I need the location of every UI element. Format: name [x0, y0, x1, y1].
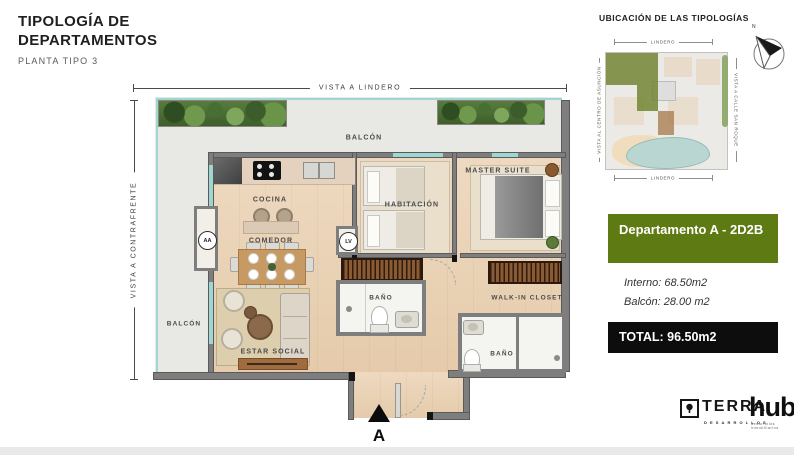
unit-total-box: TOTAL: 96.50m2	[608, 322, 778, 353]
armchair	[221, 328, 243, 350]
hub-wordmark: hub	[749, 392, 794, 422]
floor-plan-slide: TIPOLOGÍA DE DEPARTAMENTOS PLANTA TIPO 3…	[0, 0, 794, 455]
dimension-tick	[130, 379, 138, 380]
dining-table	[238, 249, 306, 285]
tree-icon	[680, 399, 699, 418]
tv-console	[238, 358, 308, 370]
wardrobe-bedroom	[341, 258, 423, 281]
sliding-door-glass	[209, 282, 213, 344]
plant-icon	[546, 236, 559, 249]
toilet-tank	[370, 324, 389, 333]
kitchen-label: COCINA	[253, 197, 287, 204]
page-header: TIPOLOGÍA DE DEPARTAMENTOS PLANTA TIPO 3	[18, 13, 157, 66]
unit-interior-area: Interno: 68.50m2	[624, 274, 710, 293]
walkin-label: WALK-IN CLOSET	[491, 295, 562, 302]
boundary-bottom-label: LINDERO	[647, 176, 679, 181]
window-glass	[393, 153, 443, 157]
boundary-top-label: LINDERO	[647, 40, 679, 45]
toilet-tank	[463, 364, 481, 372]
hub-logo: hub® desarrollos inmobiliarios	[749, 394, 794, 430]
wall-bedroom-master	[452, 152, 457, 262]
hedge-icon	[722, 55, 728, 127]
sliding-door-glass	[209, 165, 213, 207]
building-footprint	[605, 52, 728, 170]
dimension-tick	[566, 84, 567, 92]
door-jamb	[427, 412, 433, 420]
side-table	[244, 306, 257, 319]
location-title: UBICACIÓN DE LAS TIPOLOGÍAS	[599, 13, 749, 23]
dimension-tick	[130, 100, 138, 101]
cooktop-icon	[253, 161, 281, 180]
unit-highlight	[606, 53, 658, 85]
door-jamb	[349, 372, 355, 381]
wall-master-closet	[460, 253, 566, 258]
unit-name-box: Departamento A - 2D2B	[608, 214, 778, 263]
laundry-label: LV	[339, 232, 358, 251]
balcony-glass-left	[156, 98, 158, 375]
bath-sink-icon	[463, 320, 484, 335]
balcony-top-label: BALCÓN	[346, 135, 383, 142]
bed-double-icon	[480, 174, 562, 240]
compass-icon: N	[744, 24, 792, 76]
armchair	[223, 290, 245, 312]
wall-entry-stub	[427, 412, 470, 420]
map-view-left-label: VISTA AL CENTRO DE ASUNCIÓN	[597, 62, 602, 157]
unit-highlight-notch	[637, 85, 658, 111]
view-left-label: VISTA A CONTRAFRENTE	[130, 173, 139, 308]
compass-n-label: N	[752, 24, 756, 30]
bed-single-icon	[363, 210, 425, 250]
location-map: LINDERO LINDERO VISTA AL CENTRO DE ASUNC…	[596, 30, 746, 188]
map-view-right-label: VISTA A CALLE SAN ROQUE	[734, 69, 739, 151]
page-title-line2: DEPARTAMENTOS	[18, 32, 157, 51]
living-label: ESTAR SOCIAL	[241, 349, 306, 356]
sink-icon	[303, 162, 319, 179]
bath2-label: BAÑO	[490, 351, 514, 358]
entry-label: A	[373, 426, 385, 446]
sink-icon	[319, 162, 335, 179]
bath-sink-icon	[395, 311, 419, 328]
kitchen-corner-cabinet	[214, 158, 242, 184]
planter-left-icon	[158, 100, 287, 127]
balcony-left-label: BALCÓN	[167, 321, 201, 328]
dining-label: COMEDOR	[249, 238, 293, 245]
window-glass	[492, 153, 518, 157]
dimension-tick	[133, 84, 134, 92]
bath1-label: BAÑO	[369, 295, 393, 302]
nightstand-lamp	[545, 163, 559, 177]
entry-arrow-icon	[368, 404, 390, 422]
view-top-label: VISTA A LINDERO	[310, 84, 410, 93]
master-label: MASTER SUITE	[465, 168, 530, 175]
planter-right-icon	[437, 100, 545, 125]
bedroom-label: HABITACIÓN	[385, 202, 439, 209]
wall-bottom-left	[153, 372, 354, 380]
hub-sub-label: desarrollos inmobiliarios	[751, 422, 794, 430]
unit-specs: Interno: 68.50m2 Balcón: 28.00 m2	[624, 274, 710, 311]
kitchen-island	[243, 221, 299, 234]
page-subtitle: PLANTA TIPO 3	[18, 56, 157, 66]
unit-balcony-area: Balcón: 28.00 m2	[624, 293, 710, 312]
page-title-line1: TIPOLOGÍA DE	[18, 13, 157, 32]
wardrobe-master	[488, 261, 562, 284]
bed-single-icon	[363, 166, 425, 206]
door-jamb	[452, 255, 457, 262]
ac-unit-label: AA	[198, 231, 217, 250]
footer-bar	[0, 447, 794, 455]
